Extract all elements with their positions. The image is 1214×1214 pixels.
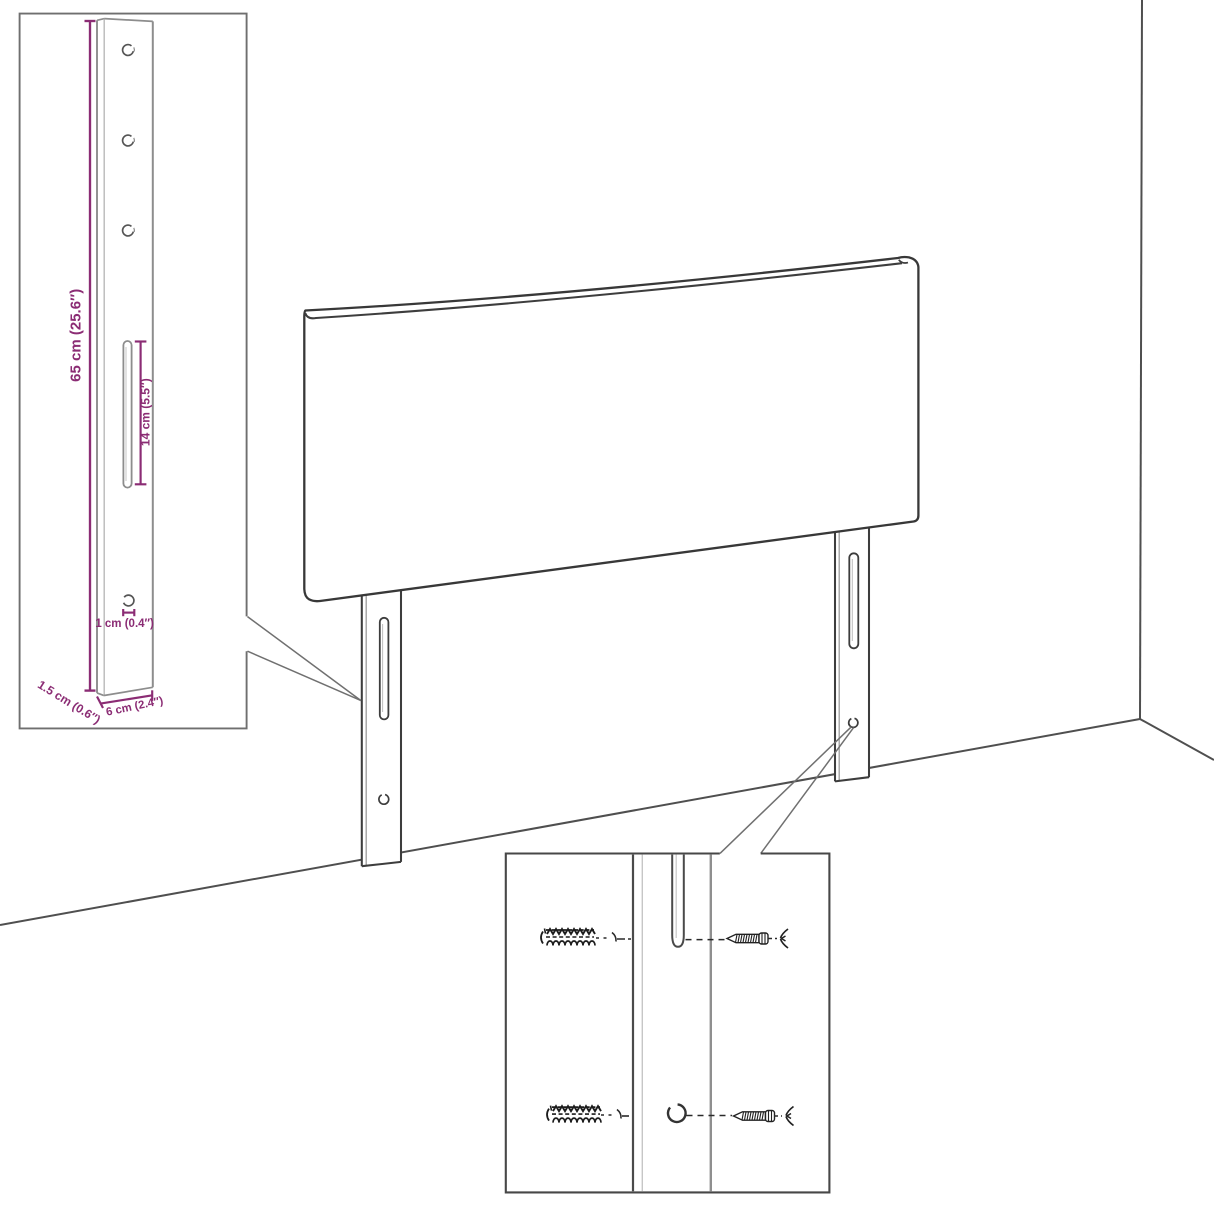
svg-text:1 cm (0.4″): 1 cm (0.4″) — [95, 618, 154, 630]
svg-text:65 cm (25.6″): 65 cm (25.6″) — [68, 289, 85, 382]
svg-text:14 cm (5.5″): 14 cm (5.5″) — [139, 378, 153, 446]
